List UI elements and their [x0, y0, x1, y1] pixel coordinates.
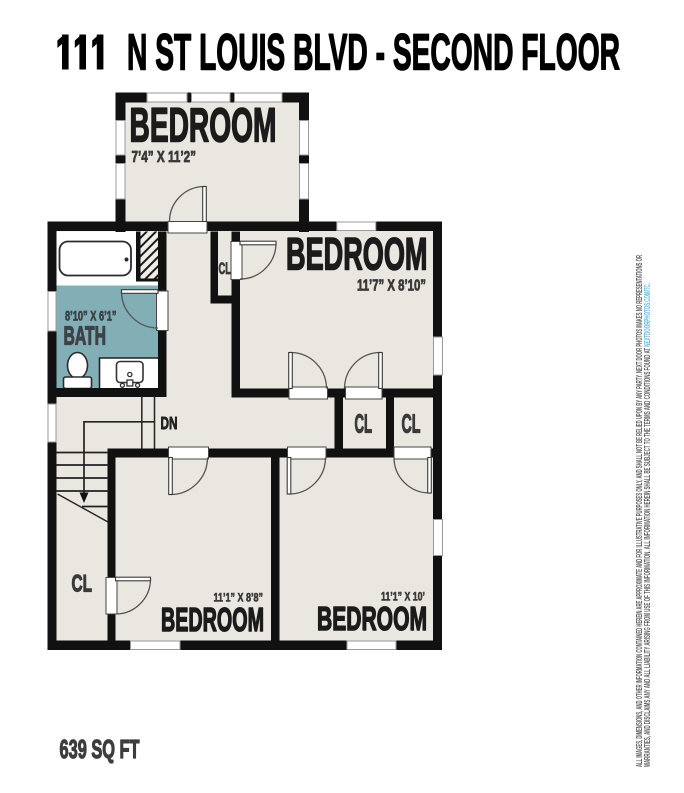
- svg-text:BEDROOM: BEDROOM: [286, 229, 428, 280]
- svg-text:11’1” X 10’: 11’1” X 10’: [381, 592, 425, 604]
- svg-text:BEDROOM: BEDROOM: [130, 100, 277, 153]
- svg-text:DN: DN: [161, 413, 178, 433]
- svg-text:CL: CL: [355, 411, 373, 439]
- svg-text:BATH: BATH: [64, 321, 107, 351]
- svg-text:7’4” X 11’2”: 7’4” X 11’2”: [132, 149, 197, 166]
- svg-text:CL: CL: [219, 260, 232, 278]
- svg-text:11’1” X 8’8”: 11’1” X 8’8”: [214, 592, 264, 604]
- svg-text:BEDROOM: BEDROOM: [317, 601, 427, 638]
- svg-text:639 SQ FT: 639 SQ FT: [60, 736, 140, 764]
- svg-text:WARRANTIES, AND DISCLAIMS ANY: WARRANTIES, AND DISCLAIMS ANY AND ALL LI…: [643, 283, 652, 767]
- svg-text:CL: CL: [402, 411, 421, 439]
- svg-text:N ST LOUIS BLVD - SECOND FLOOR: N ST LOUIS BLVD - SECOND FLOOR: [127, 24, 620, 81]
- svg-text:BEDROOM: BEDROOM: [161, 602, 264, 639]
- svg-text:CL: CL: [72, 571, 93, 598]
- svg-text:11’7” X 8’10”: 11’7” X 8’10”: [357, 278, 426, 295]
- svg-text:8’10” X 6’1”: 8’10” X 6’1”: [65, 309, 117, 324]
